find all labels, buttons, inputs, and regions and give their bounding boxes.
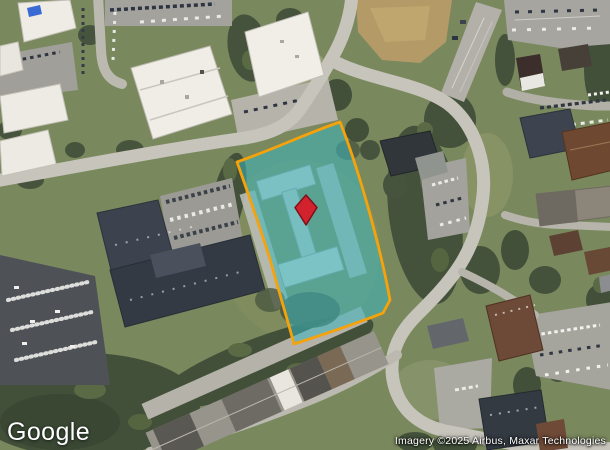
google-logo[interactable]: Google — [7, 420, 90, 445]
satellite-imagery — [0, 0, 610, 450]
map-attribution: Imagery ©2025 Airbus, Maxar Technologies — [395, 435, 606, 447]
satellite-map-canvas[interactable]: Google Imagery ©2025 Airbus, Maxar Techn… — [0, 0, 610, 450]
